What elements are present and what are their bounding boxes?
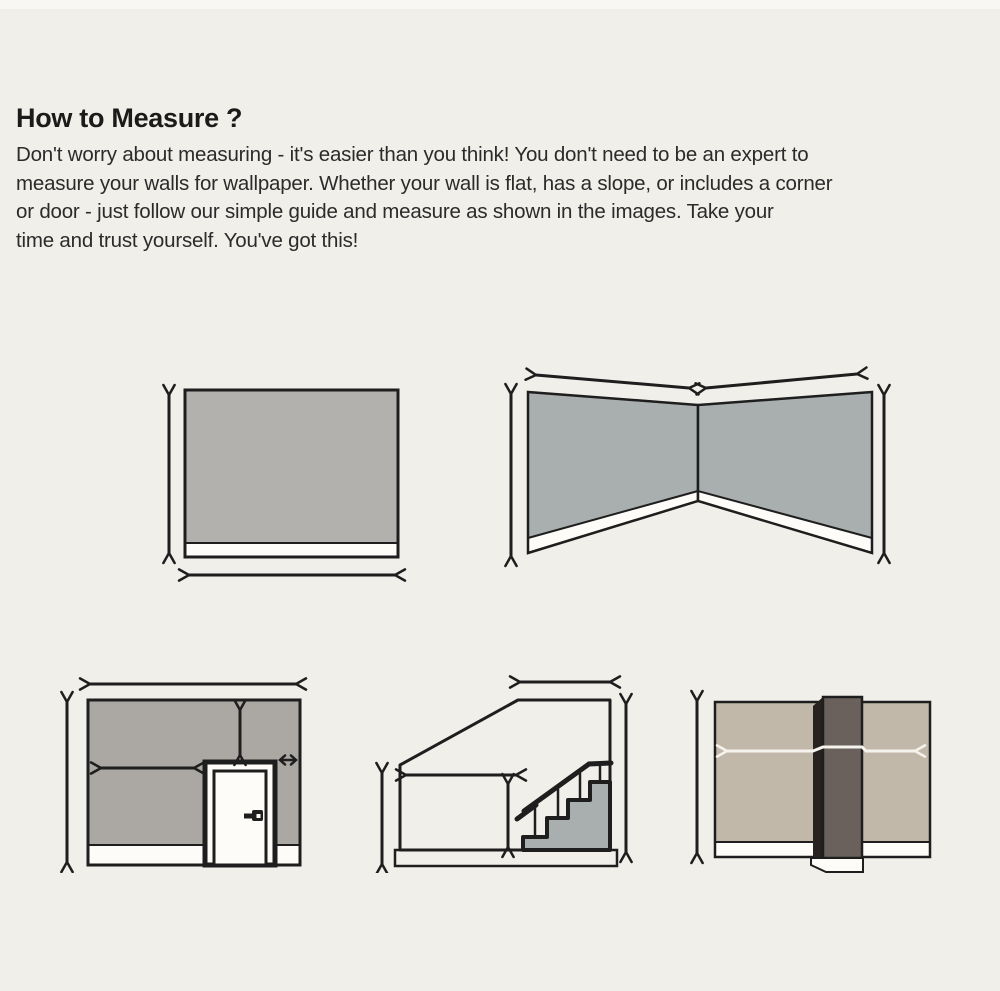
intro-line: measure your walls for wallpaper. Whethe… bbox=[16, 170, 991, 199]
door bbox=[205, 762, 275, 865]
right-width-arrow bbox=[706, 374, 857, 388]
column-front-face bbox=[823, 697, 862, 858]
left-width-arrow bbox=[536, 375, 689, 388]
right-wall bbox=[698, 392, 872, 553]
door-handle-stub bbox=[244, 814, 252, 819]
flat-wall-diagram bbox=[150, 373, 420, 588]
column-side-face bbox=[813, 697, 823, 865]
baseboard bbox=[185, 543, 398, 557]
header: How to Measure ? Don't worry about measu… bbox=[16, 103, 991, 255]
top-strip bbox=[0, 0, 1000, 9]
intro-line: time and trust yourself. You've got this… bbox=[16, 227, 991, 256]
sloped-wall-stairs-diagram bbox=[368, 668, 653, 873]
baseboard bbox=[395, 850, 617, 866]
door-handle-dot bbox=[257, 814, 261, 818]
column bbox=[811, 697, 863, 872]
intro-line: Don't worry about measuring - it's easie… bbox=[16, 141, 991, 170]
left-wall bbox=[528, 392, 698, 553]
intro-line: or door - just follow our simple guide a… bbox=[16, 198, 991, 227]
flat-wall bbox=[185, 390, 398, 557]
door-wall-diagram bbox=[50, 668, 320, 873]
column-baseboard-jog bbox=[811, 858, 863, 872]
measure-guide-page: How to Measure ? Don't worry about measu… bbox=[0, 0, 1000, 991]
wall-surface bbox=[185, 390, 398, 543]
page-title: How to Measure ? bbox=[16, 103, 991, 134]
column-wall-diagram bbox=[680, 668, 960, 880]
staircase bbox=[517, 763, 611, 850]
corner-wall-diagram bbox=[495, 355, 905, 570]
